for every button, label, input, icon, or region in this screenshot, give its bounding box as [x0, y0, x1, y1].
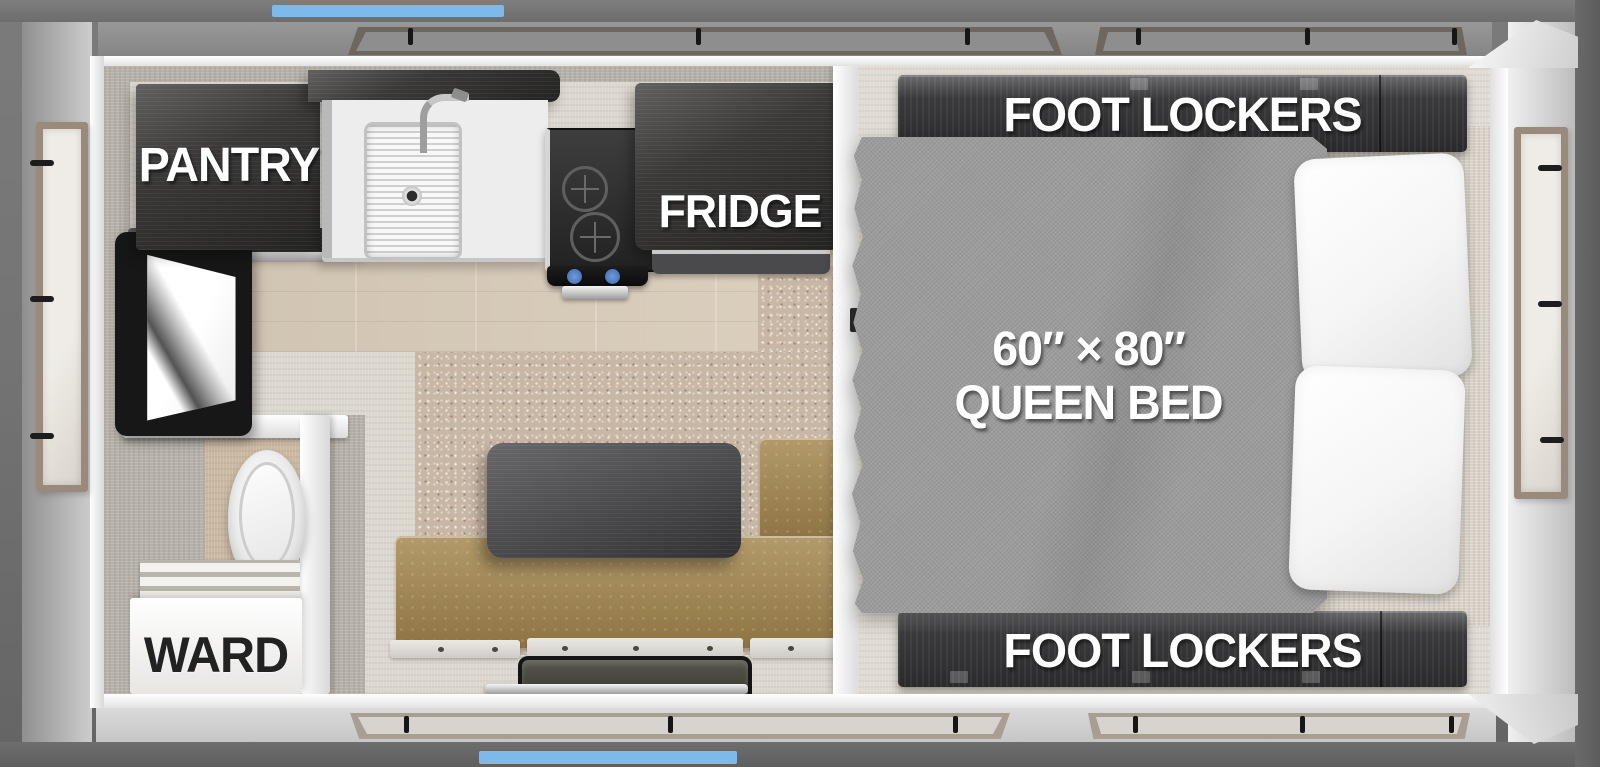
decal-stripe-bottom	[479, 751, 737, 764]
awning-clip	[1136, 28, 1141, 45]
tv-screen-reflection	[123, 242, 244, 426]
bench-kick-strip	[750, 638, 838, 658]
floor-fastener	[633, 646, 639, 651]
wall-edge-right	[1490, 56, 1508, 708]
awning-clip	[696, 28, 701, 45]
pillow-top	[1293, 152, 1473, 383]
stove-drawer-handle	[562, 286, 628, 299]
floor-fastener	[492, 647, 498, 652]
floor-fastener	[788, 646, 794, 651]
awning-clip	[668, 716, 673, 733]
awning-clip	[953, 716, 958, 733]
dinette-table	[487, 443, 741, 558]
camper-floorplan: WARD PANTRY FRIDGE	[0, 0, 1600, 767]
decal-stripe-top	[272, 5, 504, 17]
awning-panel	[1088, 713, 1470, 739]
toilet-seat	[239, 462, 295, 569]
foot-lockers-bottom-label: FOOT LOCKERS	[907, 624, 1459, 679]
bed-dimensions-text: 60″ × 80″ QUEEN BED	[850, 323, 1327, 431]
entry-grab-bar	[485, 684, 748, 694]
awning-clip	[1452, 28, 1457, 45]
awning-clip	[1305, 28, 1310, 45]
awning-clip	[408, 28, 413, 45]
window-latch	[30, 296, 54, 302]
dinette-bench-side	[760, 438, 840, 540]
roof-edge-bottom	[0, 742, 1600, 767]
sink-drain	[402, 186, 422, 206]
bench-kick-strip	[390, 640, 520, 658]
window-right	[1514, 127, 1568, 499]
floor-fastener	[438, 647, 444, 652]
interior-floor: WARD PANTRY FRIDGE	[104, 66, 1490, 694]
queen-bed-shadow-wrap: 60″ × 80″ QUEEN BED	[850, 137, 1327, 613]
awning-panel	[348, 27, 1062, 55]
pantry-label: PANTRY	[139, 138, 317, 193]
floor-fastener	[562, 646, 568, 651]
ward-label: WARD	[133, 626, 300, 684]
bed-type-label: QUEEN BED	[857, 377, 1320, 431]
window-latch	[30, 433, 54, 439]
tv	[115, 232, 252, 436]
fridge-label: FRIDGE	[638, 184, 842, 238]
awning-clip	[1300, 716, 1305, 733]
stove-knob	[567, 269, 582, 284]
awning-clip	[1133, 716, 1138, 733]
window-latch	[1538, 301, 1562, 307]
awning-clip	[404, 716, 409, 733]
awning-panel	[350, 713, 1010, 739]
carpet-strip	[758, 266, 840, 356]
stove-burner	[562, 166, 608, 212]
bed-size-label: 60″ × 80″	[857, 323, 1320, 377]
pillow-bottom	[1288, 365, 1466, 595]
roof-edge-top	[0, 0, 1600, 22]
window-latch	[1540, 437, 1564, 443]
window-latch	[1538, 165, 1562, 171]
stove-burner	[570, 212, 620, 262]
faucet	[420, 94, 469, 153]
wall-edge-left	[90, 56, 104, 708]
awning-clip	[1449, 716, 1454, 733]
foot-lockers-top-label: FOOT LOCKERS	[907, 88, 1459, 143]
floor-fastener	[707, 646, 713, 651]
roof-edge-right	[1575, 0, 1600, 767]
window-latch	[30, 160, 54, 166]
bath-partition-vertical	[300, 415, 330, 694]
awning-clip	[965, 28, 970, 45]
wall-edge-bottom	[96, 694, 1496, 708]
queen-bed-blanket: 60″ × 80″ QUEEN BED	[850, 137, 1327, 613]
stove-control-panel	[547, 266, 648, 286]
fridge-drawer	[652, 250, 830, 274]
stove-knob	[605, 269, 620, 284]
wardrobe-shelves	[140, 560, 300, 600]
awning-panel	[1095, 27, 1467, 55]
